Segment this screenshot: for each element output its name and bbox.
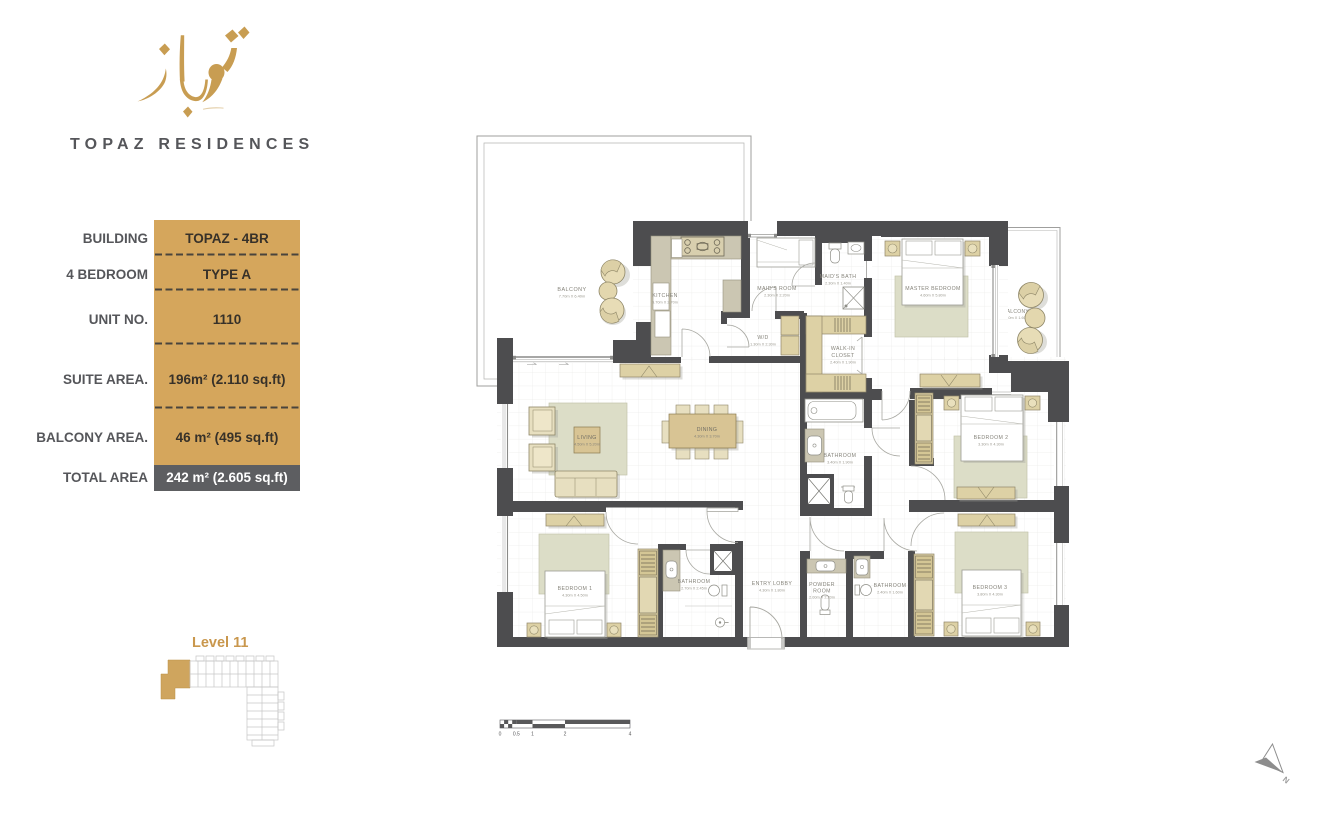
svg-text:4.30m X 1.80m: 4.30m X 1.80m <box>759 589 785 593</box>
svg-text:2.30m X 1.40m: 2.30m X 1.40m <box>825 282 851 286</box>
svg-text:46 m² (495 sq.ft): 46 m² (495 sq.ft) <box>176 430 279 445</box>
svg-text:CLOSET: CLOSET <box>831 353 855 359</box>
svg-text:4.30m X 4.50m: 4.30m X 4.50m <box>562 594 588 598</box>
svg-text:2: 2 <box>564 732 567 738</box>
svg-text:W/D: W/D <box>757 335 768 341</box>
svg-text:TOTAL AREA: TOTAL AREA <box>63 470 148 485</box>
svg-text:SUITE AREA.: SUITE AREA. <box>63 372 148 387</box>
svg-text:4 BEDROOM: 4 BEDROOM <box>66 267 148 282</box>
svg-text:MASTER BEDROOM: MASTER BEDROOM <box>905 286 960 292</box>
svg-text:4.60m X 5.80m: 4.60m X 5.80m <box>920 294 946 298</box>
svg-text:2.70m X 2.45m: 2.70m X 2.45m <box>681 587 707 591</box>
svg-text:2.00m X 2.20m: 2.00m X 2.20m <box>809 596 835 600</box>
svg-text:3.30m X 4.30m: 3.30m X 4.30m <box>978 443 1004 447</box>
svg-text:0.5: 0.5 <box>513 732 520 738</box>
svg-text:BALCONY: BALCONY <box>557 287 586 293</box>
svg-text:1.30m X 2.30m: 1.30m X 2.30m <box>750 343 776 347</box>
svg-text:TYPE A: TYPE A <box>203 267 252 282</box>
svg-text:LIVING: LIVING <box>577 435 596 441</box>
svg-text:BEDROOM 2: BEDROOM 2 <box>974 435 1009 441</box>
svg-text:BATHROOM: BATHROOM <box>824 453 857 459</box>
svg-text:DINING: DINING <box>697 427 718 433</box>
svg-text:TOPAZ - 4BR: TOPAZ - 4BR <box>185 231 269 246</box>
svg-text:1: 1 <box>531 732 534 738</box>
svg-text:3.40m X 1.90m: 3.40m X 1.90m <box>827 461 853 465</box>
svg-text:BALCONY AREA.: BALCONY AREA. <box>36 430 148 445</box>
svg-text:4.30m X 3.70m: 4.30m X 3.70m <box>694 435 720 439</box>
svg-text:4: 4 <box>629 732 632 738</box>
svg-text:TOPAZ RESIDENCES: TOPAZ RESIDENCES <box>70 136 314 153</box>
svg-text:WALK-IN: WALK-IN <box>831 346 855 352</box>
svg-text:Level 11: Level 11 <box>192 635 248 651</box>
svg-text:196m² (2.110 sq.ft): 196m² (2.110 sq.ft) <box>168 372 285 387</box>
svg-text:5.70m X 2.70m: 5.70m X 2.70m <box>652 301 678 305</box>
svg-text:2.40m X 1.90m: 2.40m X 1.90m <box>830 361 856 365</box>
svg-text:1110: 1110 <box>213 312 242 327</box>
svg-text:2.30m X 2.20m: 2.30m X 2.20m <box>764 294 790 298</box>
svg-text:242 m² (2.605 sq.ft): 242 m² (2.605 sq.ft) <box>166 470 288 485</box>
svg-text:0: 0 <box>499 732 502 738</box>
svg-text:KITCHEN: KITCHEN <box>652 293 678 299</box>
svg-text:3.80m X 4.30m: 3.80m X 4.30m <box>977 593 1003 597</box>
svg-text:BATHROOM: BATHROOM <box>678 579 711 585</box>
svg-text:MAID'S ROOM: MAID'S ROOM <box>757 286 796 292</box>
svg-text:UNIT NO.: UNIT NO. <box>89 312 148 327</box>
svg-text:POWDER: POWDER <box>809 582 835 588</box>
svg-text:BATHROOM: BATHROOM <box>874 583 907 589</box>
svg-text:BEDROOM 3: BEDROOM 3 <box>973 585 1008 591</box>
svg-text:ROOM: ROOM <box>813 589 831 595</box>
svg-text:7.70m X 6.40m: 7.70m X 6.40m <box>559 294 585 299</box>
svg-text:BUILDING: BUILDING <box>83 231 148 246</box>
svg-text:2.40m X 1.60m: 2.40m X 1.60m <box>877 591 903 595</box>
svg-text:BEDROOM 1: BEDROOM 1 <box>558 586 593 592</box>
svg-text:4.50m X 5.20m: 4.50m X 5.20m <box>574 443 600 447</box>
svg-text:MAID'S BATH: MAID'S BATH <box>820 274 857 280</box>
svg-text:ENTRY LOBBY: ENTRY LOBBY <box>752 581 793 587</box>
